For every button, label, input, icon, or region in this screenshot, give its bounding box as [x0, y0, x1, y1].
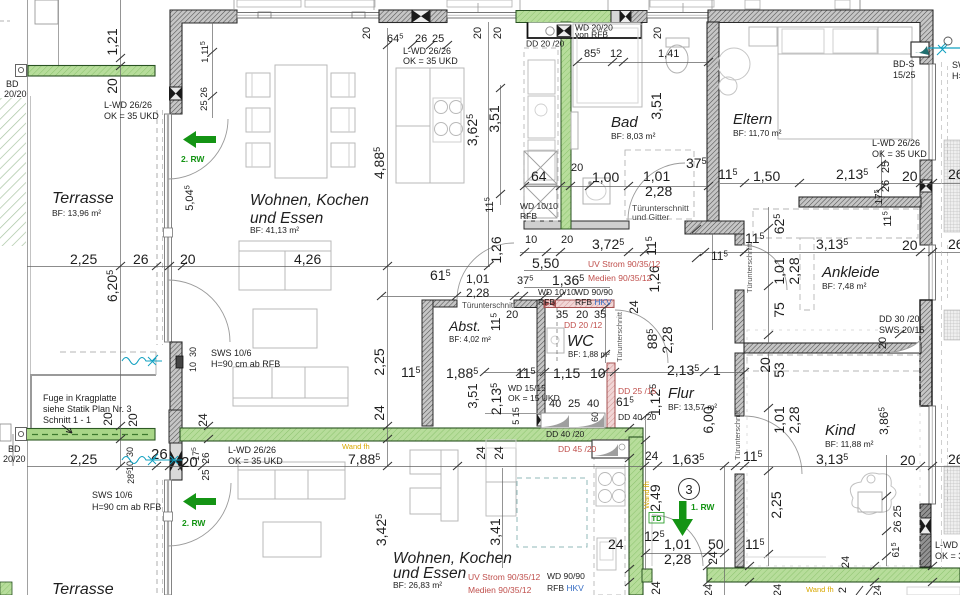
- svg-text:20: 20: [900, 452, 916, 468]
- svg-text:Türunterschnitt: Türunterschnitt: [733, 409, 742, 460]
- svg-text:H=90 cm ab RFB: H=90 cm ab RFB: [92, 502, 161, 512]
- svg-text:BF: 7,48 m²: BF: 7,48 m²: [822, 281, 867, 291]
- svg-text:20: 20: [104, 78, 120, 94]
- svg-text:RFB: RFB: [538, 297, 555, 307]
- svg-text:H=90 cm ab RFB: H=90 cm ab RFB: [211, 359, 280, 369]
- svg-text:Wand fh: Wand fh: [642, 481, 651, 509]
- svg-text:5,50: 5,50: [532, 255, 559, 271]
- svg-text:L-WD 2: L-WD 2: [935, 540, 960, 550]
- svg-text:Medien 90/35/12: Medien 90/35/12: [468, 585, 532, 595]
- svg-text:BF: 11,70 m²: BF: 11,70 m²: [733, 128, 782, 138]
- svg-text:26: 26: [133, 251, 149, 267]
- svg-text:25: 25: [201, 469, 212, 481]
- svg-text:20: 20: [561, 234, 573, 246]
- svg-text:OK = 15 UKD: OK = 15 UKD: [508, 393, 560, 403]
- svg-text:Kind: Kind: [825, 422, 856, 439]
- svg-text:1: 1: [713, 362, 721, 378]
- svg-text:1,21: 1,21: [104, 28, 120, 55]
- svg-text:OK = 3: OK = 3: [935, 551, 960, 561]
- svg-text:1,50: 1,50: [753, 168, 780, 184]
- svg-text:20: 20: [902, 237, 918, 253]
- svg-text:OK = 35 UKD: OK = 35 UKD: [872, 149, 927, 159]
- svg-text:2,25: 2,25: [768, 491, 784, 518]
- svg-text:26: 26: [948, 451, 960, 467]
- svg-text:Türunterschnitt: Türunterschnitt: [615, 311, 624, 362]
- svg-text:BF: 1,88 m²: BF: 1,88 m²: [568, 350, 610, 359]
- svg-text:24: 24: [840, 556, 852, 568]
- svg-text:25: 25: [568, 398, 580, 410]
- svg-text:25: 25: [432, 33, 444, 45]
- svg-text:siehe Statik Plan Nr. 3: siehe Statik Plan Nr. 3: [43, 404, 132, 414]
- svg-text:24: 24: [371, 405, 387, 421]
- svg-text:1,01: 1,01: [466, 272, 490, 286]
- svg-text:20: 20: [652, 27, 664, 39]
- svg-text:10: 10: [525, 234, 537, 246]
- svg-text:Terrasse: Terrasse: [52, 190, 114, 207]
- svg-text:SWS 20/15: SWS 20/15: [879, 325, 925, 335]
- svg-text:BF: 8,03 m²: BF: 8,03 m²: [611, 131, 656, 141]
- svg-text:Medien 90/35/12: Medien 90/35/12: [588, 273, 652, 283]
- svg-text:20: 20: [361, 27, 373, 39]
- svg-text:DD 45 /20: DD 45 /20: [558, 444, 597, 454]
- svg-text:26: 26: [948, 166, 960, 182]
- svg-text:24: 24: [492, 446, 506, 460]
- svg-text:L-WD 26/26: L-WD 26/26: [104, 100, 152, 110]
- svg-text:OK = 35 UKD: OK = 35 UKD: [228, 456, 283, 466]
- svg-text:24: 24: [645, 449, 659, 463]
- svg-text:L-WD 26/26: L-WD 26/26: [872, 138, 920, 148]
- svg-text:26 25: 26 25: [892, 505, 904, 533]
- svg-text:WD 10/10: WD 10/10: [520, 201, 558, 211]
- svg-text:SWS 10/6: SWS 10/6: [92, 490, 133, 500]
- svg-text:Eltern: Eltern: [733, 111, 772, 128]
- svg-text:20: 20: [180, 251, 196, 267]
- svg-text:Flur: Flur: [668, 385, 695, 402]
- svg-text:Wand fh: Wand fh: [806, 585, 834, 594]
- svg-text:L-WD 26/26: L-WD 26/26: [403, 46, 451, 56]
- svg-text:10: 10: [188, 362, 198, 372]
- svg-text:Abst.: Abst.: [448, 318, 481, 334]
- svg-text:2. RW: 2. RW: [181, 154, 205, 164]
- svg-text:24: 24: [474, 446, 488, 460]
- svg-text:20: 20: [492, 27, 504, 39]
- svg-text:Fuge in Kragplatte: Fuge in Kragplatte: [43, 393, 117, 403]
- svg-text:3,51: 3,51: [486, 105, 502, 132]
- svg-text:BD-S: BD-S: [893, 59, 915, 69]
- svg-text:3: 3: [685, 482, 692, 497]
- svg-text:60: 60: [590, 412, 600, 422]
- svg-text:Wohnen, Kochen: Wohnen, Kochen: [250, 192, 369, 209]
- svg-text:75: 75: [771, 302, 787, 318]
- svg-text:64: 64: [531, 168, 547, 184]
- svg-text:1,01: 1,01: [664, 536, 691, 552]
- svg-text:L-WD 26/26: L-WD 26/26: [228, 445, 276, 455]
- svg-text:WD 90/90: WD 90/90: [575, 287, 613, 297]
- svg-text:Ankleide: Ankleide: [821, 264, 880, 281]
- svg-text:24: 24: [772, 584, 784, 595]
- svg-text:24: 24: [627, 300, 641, 314]
- svg-text:24: 24: [872, 585, 884, 595]
- svg-text:12: 12: [610, 48, 622, 60]
- svg-text:2. RW: 2. RW: [182, 518, 206, 528]
- svg-text:WD 10/10: WD 10/10: [538, 287, 576, 297]
- svg-text:26: 26: [201, 452, 212, 464]
- svg-text:OK = 35 UKD: OK = 35 UKD: [104, 111, 159, 121]
- svg-text:30: 30: [188, 347, 198, 357]
- svg-text:24: 24: [196, 413, 210, 427]
- svg-text:Wand fh: Wand fh: [342, 442, 370, 451]
- svg-text:und Gitter: und Gitter: [632, 212, 669, 222]
- svg-text:10: 10: [125, 461, 135, 471]
- svg-text:1,00: 1,00: [592, 169, 619, 185]
- svg-text:DD 20 /12: DD 20 /12: [564, 320, 603, 330]
- svg-text:DD 20 /20: DD 20 /20: [526, 39, 565, 49]
- svg-text:Türunterschnitt: Türunterschnitt: [462, 301, 516, 310]
- svg-text:BF: 11,88 m²: BF: 11,88 m²: [825, 439, 874, 449]
- svg-text:H=: H=: [952, 71, 960, 81]
- svg-text:1,26: 1,26: [488, 236, 504, 263]
- svg-text:25: 25: [880, 161, 892, 173]
- svg-text:1,01: 1,01: [771, 406, 787, 433]
- svg-text:BF: 26,83 m²: BF: 26,83 m²: [393, 580, 442, 590]
- svg-text:DD 25 /15: DD 25 /15: [618, 386, 657, 396]
- svg-text:30: 30: [125, 447, 135, 457]
- svg-text:von RFB: von RFB: [575, 30, 608, 40]
- svg-text:15/25: 15/25: [893, 70, 916, 80]
- svg-text:20: 20: [126, 413, 140, 427]
- svg-text:UV Strom 90/35/12: UV Strom 90/35/12: [468, 572, 541, 582]
- svg-text:SW: SW: [952, 60, 960, 70]
- svg-text:1,01: 1,01: [643, 168, 670, 184]
- svg-text:2,25: 2,25: [70, 451, 97, 467]
- svg-text:20: 20: [902, 168, 918, 184]
- svg-text:BD: BD: [8, 444, 21, 454]
- svg-text:WD 15/15: WD 15/15: [508, 383, 546, 393]
- svg-text:4,26: 4,26: [294, 251, 321, 267]
- svg-text:26: 26: [415, 33, 427, 45]
- svg-text:2,28: 2,28: [786, 406, 802, 433]
- svg-text:20: 20: [877, 337, 889, 349]
- svg-text:3,51: 3,51: [465, 383, 480, 408]
- svg-text:2: 2: [837, 587, 849, 593]
- svg-text:20: 20: [506, 309, 518, 321]
- svg-text:20/20: 20/20: [4, 89, 27, 99]
- svg-text:20: 20: [101, 412, 115, 426]
- svg-text:6,00: 6,00: [700, 406, 716, 433]
- svg-text:Bad: Bad: [611, 114, 638, 131]
- svg-text:10: 10: [590, 365, 606, 381]
- svg-text:40: 40: [587, 398, 599, 410]
- svg-text:26: 26: [880, 180, 892, 192]
- svg-text:RFB: RFB: [520, 211, 537, 221]
- svg-text:53: 53: [771, 362, 787, 378]
- svg-text:20: 20: [472, 27, 484, 39]
- svg-text:DD 40 /20: DD 40 /20: [546, 429, 585, 439]
- svg-text:BF: 4,02 m²: BF: 4,02 m²: [449, 335, 491, 344]
- svg-text:2,28: 2,28: [659, 326, 675, 353]
- svg-text:2,28: 2,28: [786, 257, 802, 284]
- svg-text:1,01: 1,01: [771, 257, 787, 284]
- svg-text:TD: TD: [652, 514, 663, 523]
- svg-text:3,41: 3,41: [487, 518, 503, 545]
- svg-text:Schnitt 1 - 1: Schnitt 1 - 1: [43, 415, 91, 425]
- svg-text:DD 30 /20: DD 30 /20: [879, 314, 920, 324]
- svg-text:3,51: 3,51: [648, 92, 664, 119]
- svg-text:20: 20: [571, 162, 583, 174]
- svg-text:1,15: 1,15: [553, 365, 580, 381]
- svg-text:WD 90/90: WD 90/90: [547, 571, 585, 581]
- svg-text:1,41: 1,41: [658, 48, 679, 60]
- svg-text:UV Strom 90/35/12: UV Strom 90/35/12: [588, 259, 661, 269]
- svg-text:BD: BD: [6, 79, 19, 89]
- svg-text:Türunterschnitt: Türunterschnitt: [745, 242, 754, 293]
- svg-text:26: 26: [948, 236, 960, 252]
- svg-text:2,28: 2,28: [645, 183, 672, 199]
- svg-text:50: 50: [708, 536, 724, 552]
- svg-text:RFB HKV: RFB HKV: [575, 297, 612, 307]
- svg-text:Terrasse: Terrasse: [52, 581, 114, 595]
- svg-text:24: 24: [703, 584, 715, 595]
- svg-text:2,25: 2,25: [371, 348, 387, 375]
- svg-text:2,28: 2,28: [664, 551, 691, 567]
- svg-text:24: 24: [649, 581, 663, 595]
- svg-text:25 26: 25 26: [199, 87, 210, 111]
- svg-text:24: 24: [706, 551, 720, 565]
- svg-text:WC: WC: [567, 333, 594, 350]
- svg-text:DD 40 /20: DD 40 /20: [618, 412, 657, 422]
- svg-text:2,25: 2,25: [70, 251, 97, 267]
- svg-text:SWS 10/6: SWS 10/6: [211, 348, 252, 358]
- svg-text:5 15: 5 15: [511, 407, 521, 425]
- svg-text:BF: 41,13 m²: BF: 41,13 m²: [250, 225, 299, 235]
- svg-text:2,28: 2,28: [466, 286, 490, 300]
- svg-text:BF: 13,96 m²: BF: 13,96 m²: [52, 208, 101, 218]
- svg-text:OK = 35 UKD: OK = 35 UKD: [403, 56, 458, 66]
- svg-text:1. RW: 1. RW: [691, 502, 715, 512]
- svg-text:24: 24: [608, 536, 624, 552]
- svg-text:RFB HKV: RFB HKV: [547, 583, 584, 593]
- svg-text:20/20: 20/20: [3, 454, 26, 464]
